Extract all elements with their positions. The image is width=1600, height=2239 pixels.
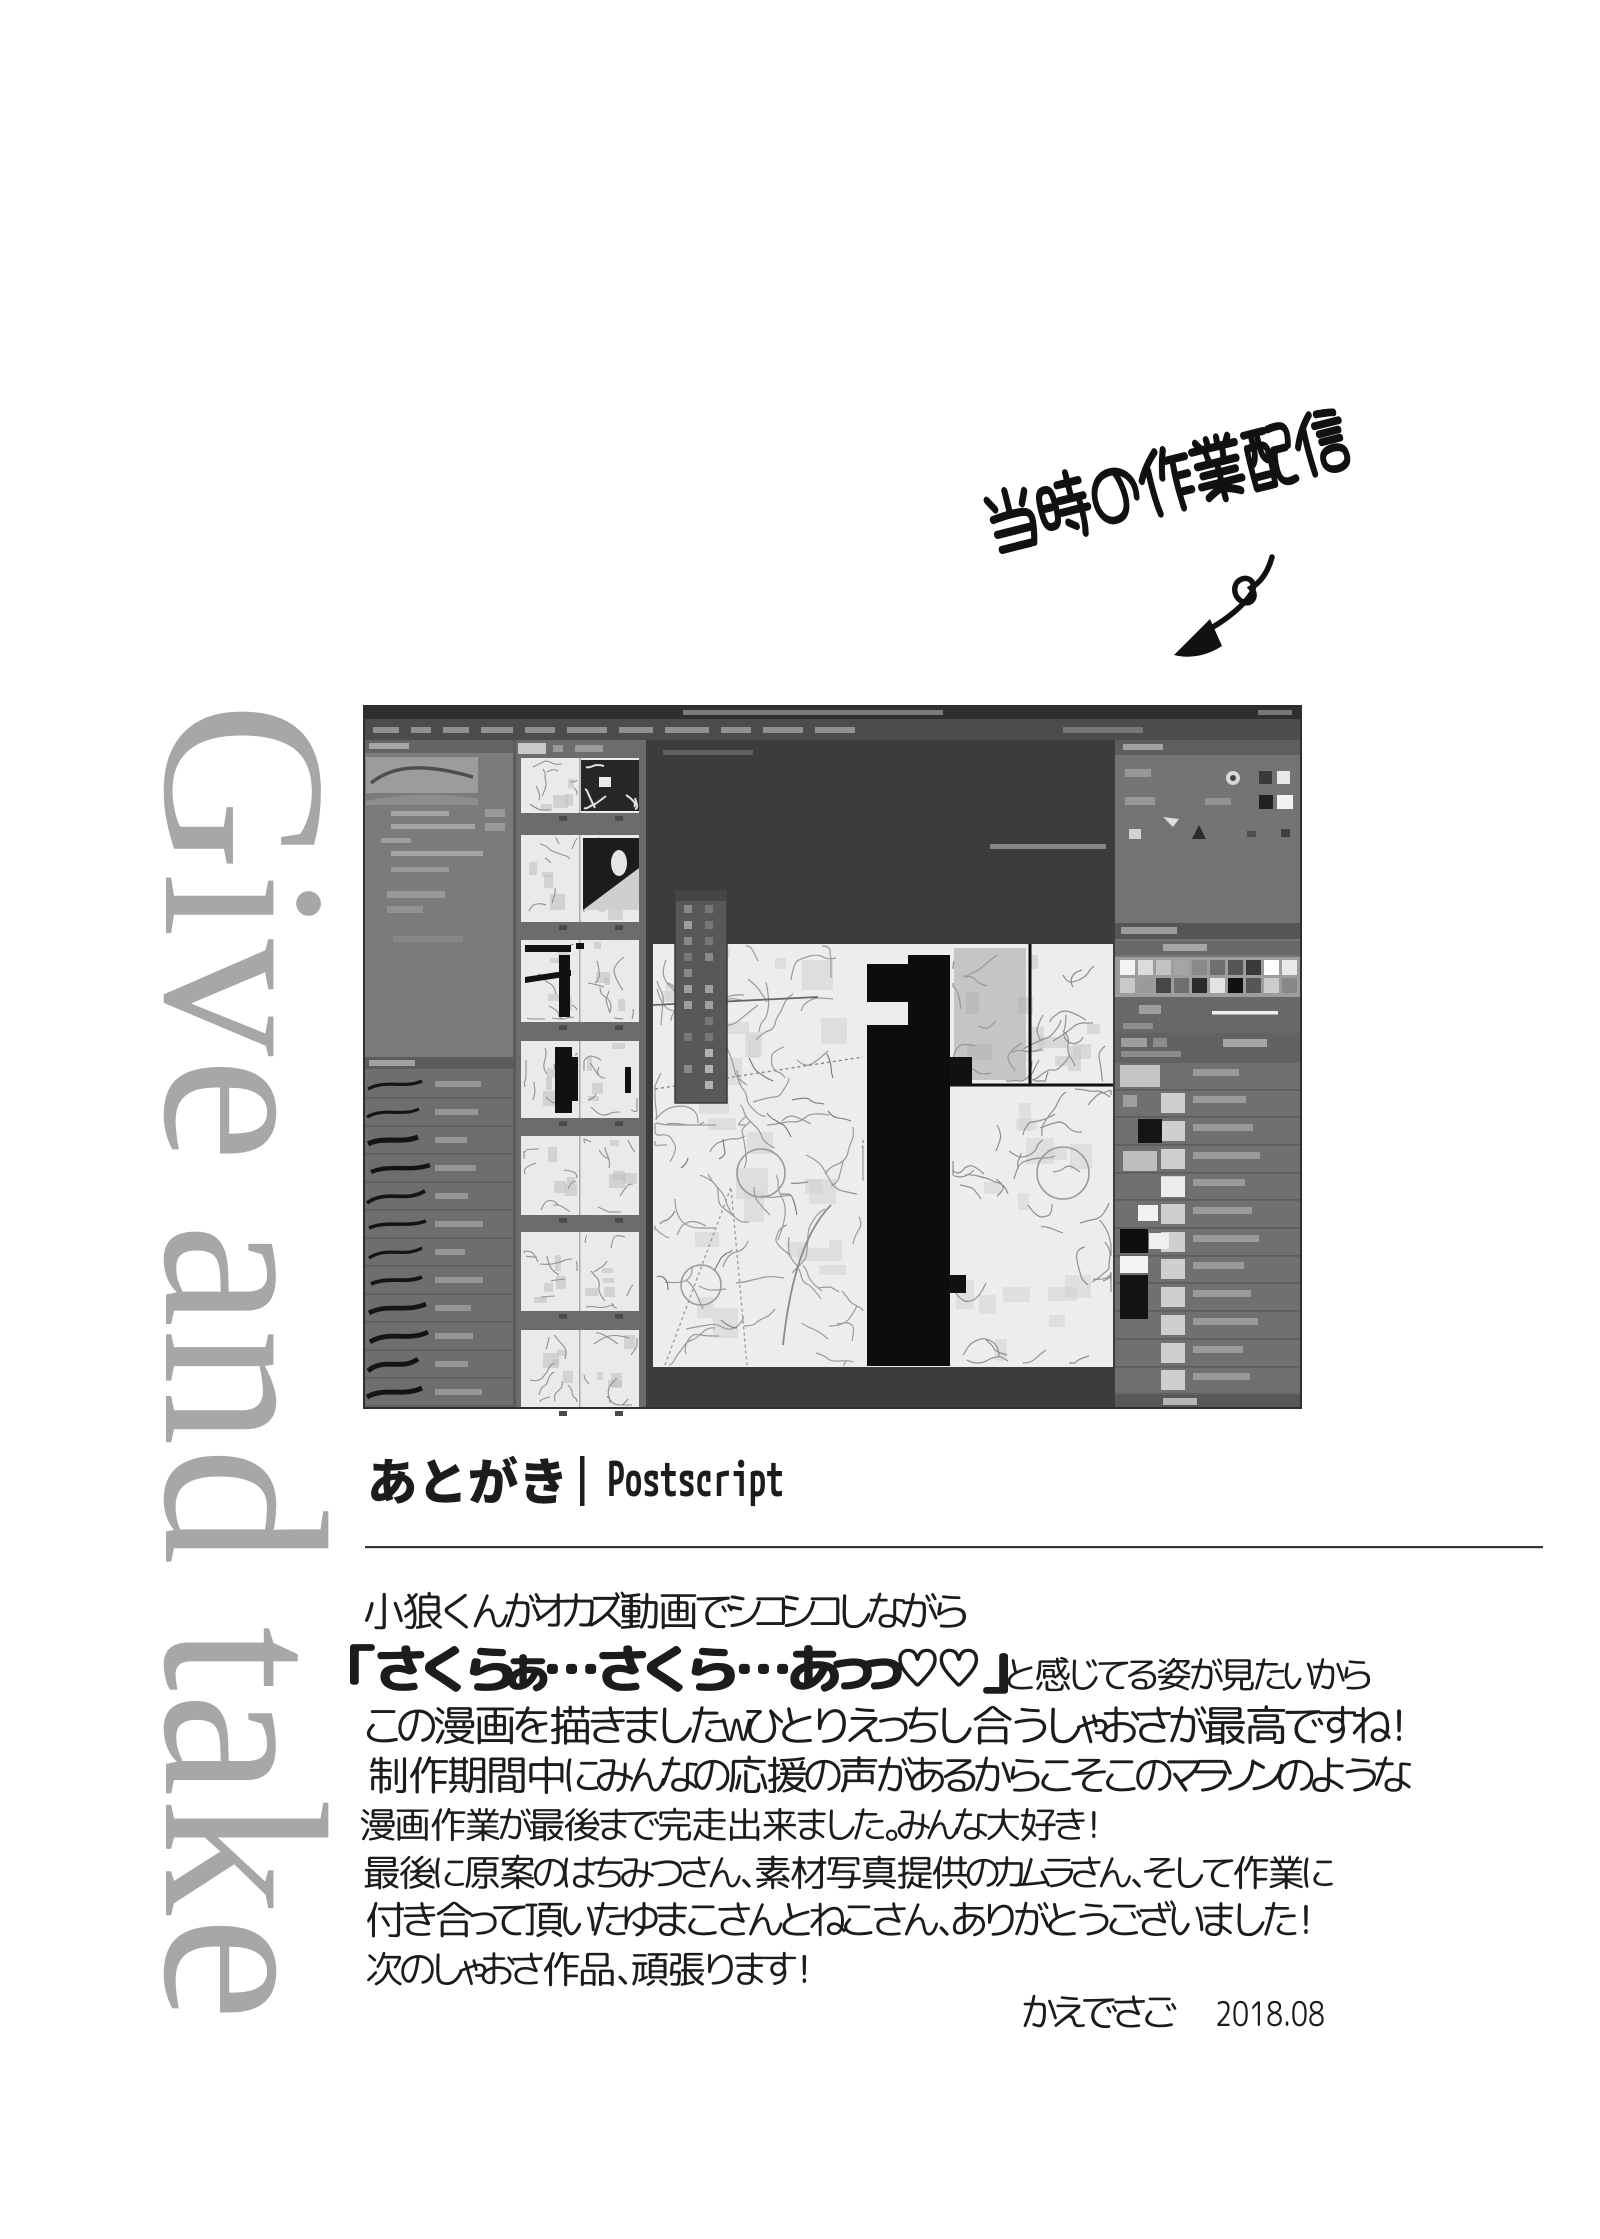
svg-text:Give and take: Give and take <box>115 702 375 2022</box>
